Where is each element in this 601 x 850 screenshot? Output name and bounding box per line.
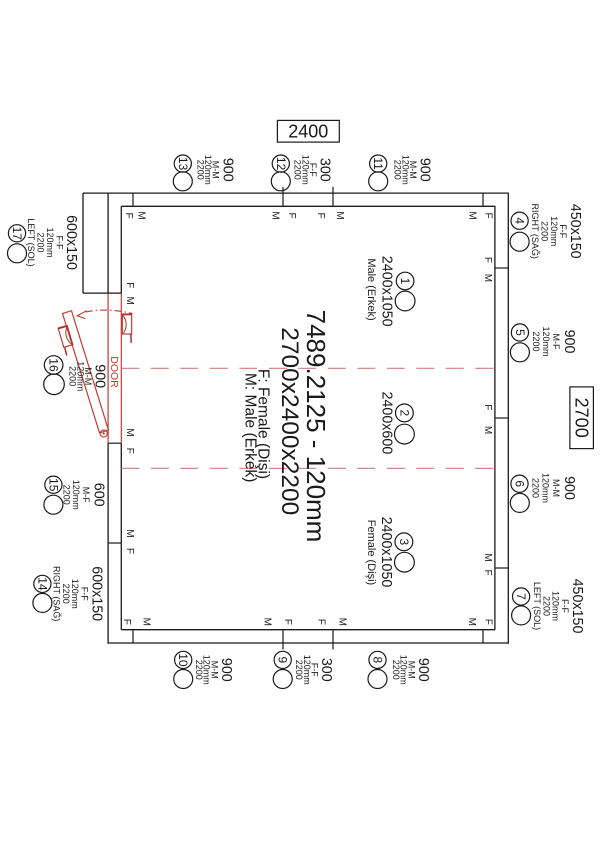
svg-text:450x150: 450x150 [567,204,583,259]
svg-text:2400x1050: 2400x1050 [379,256,395,327]
svg-text:300: 300 [318,658,334,682]
svg-text:10: 10 [176,653,190,667]
svg-text:M: M [269,211,280,219]
svg-text:F: F [124,282,135,288]
svg-text:RIGHT (SAĞ): RIGHT (SAĞ) [530,204,540,259]
svg-text:300: 300 [317,158,333,182]
svg-text:2: 2 [397,410,411,417]
svg-text:M: M [466,211,477,219]
svg-text:600: 600 [90,483,106,507]
svg-text:F: F [315,212,326,218]
svg-text:Male (Erkek): Male (Erkek) [365,258,377,320]
svg-text:2200: 2200 [293,160,303,180]
svg-text:DOOR: DOOR [108,356,120,388]
svg-text:900: 900 [415,658,431,682]
svg-text:600x150: 600x150 [63,215,79,270]
svg-text:F: F [482,570,493,576]
svg-text:2400x600: 2400x600 [379,391,395,454]
svg-text:6: 6 [513,480,527,487]
svg-text:M-F: M-F [81,487,91,503]
svg-text:M: M [466,618,477,626]
svg-text:3: 3 [397,538,411,545]
svg-text:F: F [282,619,293,625]
svg-text:16: 16 [47,358,61,372]
svg-text:M: M [334,211,345,219]
svg-text:M: M [482,553,493,561]
svg-text:2200: 2200 [194,660,204,680]
svg-text:2200: 2200 [62,485,72,505]
svg-text:M: M [124,428,135,436]
svg-text:M-M: M-M [551,479,561,497]
svg-text:F: F [482,212,493,218]
svg-text:M: Male (Erkek): M: Male (Erkek) [242,373,259,482]
svg-text:RIGHT (SAĞ): RIGHT (SAĞ) [51,566,61,621]
svg-text:900: 900 [417,158,433,182]
svg-text:600x150: 600x150 [88,566,104,621]
svg-text:900: 900 [219,158,235,182]
svg-text:LEFT (SOL): LEFT (SOL) [532,582,542,630]
svg-text:2700x2400x2200: 2700x2400x2200 [276,327,303,515]
svg-text:M: M [482,274,493,282]
svg-text:120mm: 120mm [541,473,551,503]
svg-text:7489.2125 - 120mm: 7489.2125 - 120mm [301,310,331,543]
svg-text:13: 13 [176,157,190,171]
svg-text:F: F [123,212,134,218]
svg-text:2200: 2200 [195,160,205,180]
svg-text:2200: 2200 [531,331,541,351]
svg-text:5: 5 [513,329,527,336]
svg-text:1: 1 [398,278,412,285]
svg-text:F: F [124,548,135,554]
svg-text:900: 900 [92,364,108,388]
svg-text:8: 8 [371,657,385,664]
svg-text:15: 15 [46,478,60,492]
svg-text:2400x1050: 2400x1050 [378,517,394,588]
svg-text:9: 9 [276,657,290,664]
svg-text:F: F [482,257,493,263]
svg-text:F: F [316,619,327,625]
svg-text:4: 4 [513,217,527,224]
svg-text:LEFT (SOL): LEFT (SOL) [26,218,36,266]
svg-text:120mm: 120mm [541,326,551,356]
svg-text:2700: 2700 [572,398,592,438]
svg-text:M: M [141,618,152,626]
svg-text:M: M [124,529,135,537]
svg-text:M: M [136,211,147,219]
svg-text:2200: 2200 [531,478,541,498]
svg-text:2200: 2200 [68,366,78,386]
svg-text:12: 12 [274,157,288,171]
svg-text:M: M [482,426,493,434]
svg-text:M: M [337,618,348,626]
svg-text:M: M [124,297,135,305]
svg-text:2200: 2200 [294,660,304,680]
svg-text:M: M [262,618,273,626]
svg-text:2200: 2200 [391,660,401,680]
svg-text:F: F [124,448,135,454]
svg-text:900: 900 [218,658,234,682]
svg-text:900: 900 [561,476,577,500]
svg-text:900: 900 [561,330,577,354]
svg-text:11: 11 [371,157,385,170]
svg-text:14: 14 [35,577,49,591]
svg-text:F: F [482,404,493,410]
svg-text:F: F [121,619,132,625]
svg-text:2400: 2400 [288,122,328,142]
svg-text:F: F [482,619,493,625]
svg-text:Female (Dişi): Female (Dişi) [365,520,377,585]
svg-text:M-F: M-F [551,334,561,350]
svg-text:17: 17 [10,227,24,241]
svg-text:7: 7 [514,593,528,600]
svg-text:2200: 2200 [393,160,403,180]
svg-text:120mm: 120mm [71,480,81,510]
svg-text:450x150: 450x150 [569,579,585,634]
svg-text:F: F [286,212,297,218]
